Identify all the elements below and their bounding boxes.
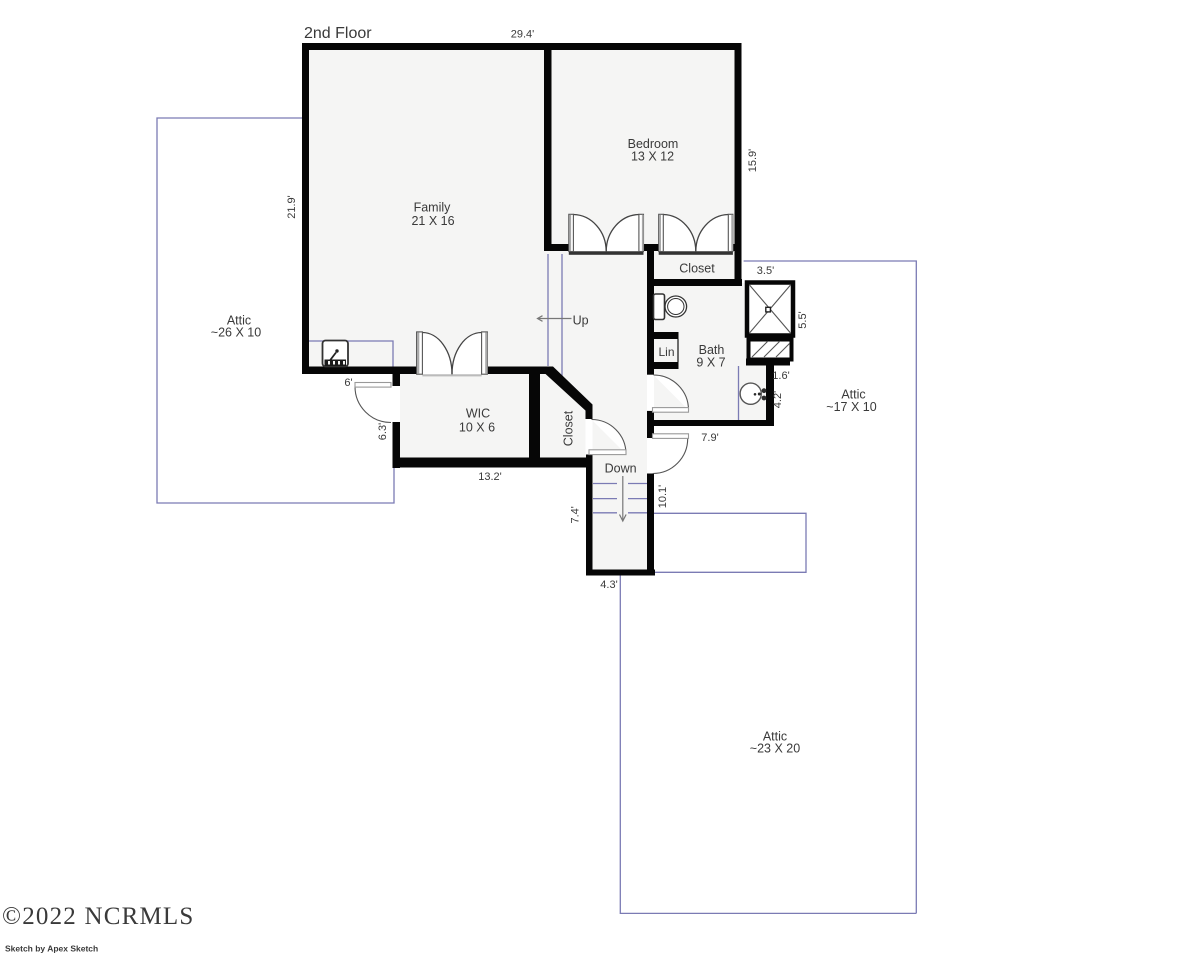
svg-text:WIC: WIC bbox=[466, 407, 490, 421]
svg-text:Closet: Closet bbox=[561, 410, 575, 446]
svg-text:15.9': 15.9' bbox=[747, 149, 759, 173]
svg-text:21 X 16: 21 X 16 bbox=[411, 214, 454, 228]
svg-text:21.9': 21.9' bbox=[286, 195, 298, 219]
svg-text:Up: Up bbox=[573, 313, 589, 327]
svg-text:Sketch by Apex Sketch: Sketch by Apex Sketch bbox=[5, 944, 98, 954]
svg-text:6.3': 6.3' bbox=[377, 423, 389, 440]
svg-text:~23 X 20: ~23 X 20 bbox=[750, 742, 800, 756]
svg-text:13 X 12: 13 X 12 bbox=[631, 150, 674, 164]
svg-text:7.4': 7.4' bbox=[570, 506, 582, 523]
svg-text:29.4': 29.4' bbox=[511, 29, 535, 41]
svg-text:9 X 7: 9 X 7 bbox=[696, 356, 725, 370]
svg-text:4.2': 4.2' bbox=[772, 391, 784, 408]
svg-text:Closet: Closet bbox=[679, 262, 715, 276]
svg-text:~26 X 10: ~26 X 10 bbox=[211, 325, 261, 339]
svg-text:5.5': 5.5' bbox=[797, 311, 809, 328]
svg-text:4.3': 4.3' bbox=[600, 579, 617, 591]
svg-text:10.1': 10.1' bbox=[657, 485, 669, 509]
svg-text:Family: Family bbox=[414, 201, 452, 215]
svg-text:~17 X 10: ~17 X 10 bbox=[826, 400, 876, 414]
svg-text:2nd Floor: 2nd Floor bbox=[304, 25, 372, 42]
svg-text:6': 6' bbox=[344, 377, 352, 389]
svg-text:7.9': 7.9' bbox=[701, 432, 718, 444]
svg-text:Lin: Lin bbox=[658, 345, 674, 359]
svg-text:1.6': 1.6' bbox=[772, 370, 789, 382]
svg-text:©2022 NCRMLS: ©2022 NCRMLS bbox=[2, 903, 194, 930]
svg-text:3.5': 3.5' bbox=[757, 265, 774, 277]
svg-text:13.2': 13.2' bbox=[478, 471, 502, 483]
svg-text:Down: Down bbox=[605, 462, 637, 476]
svg-text:10 X 6: 10 X 6 bbox=[459, 421, 495, 435]
